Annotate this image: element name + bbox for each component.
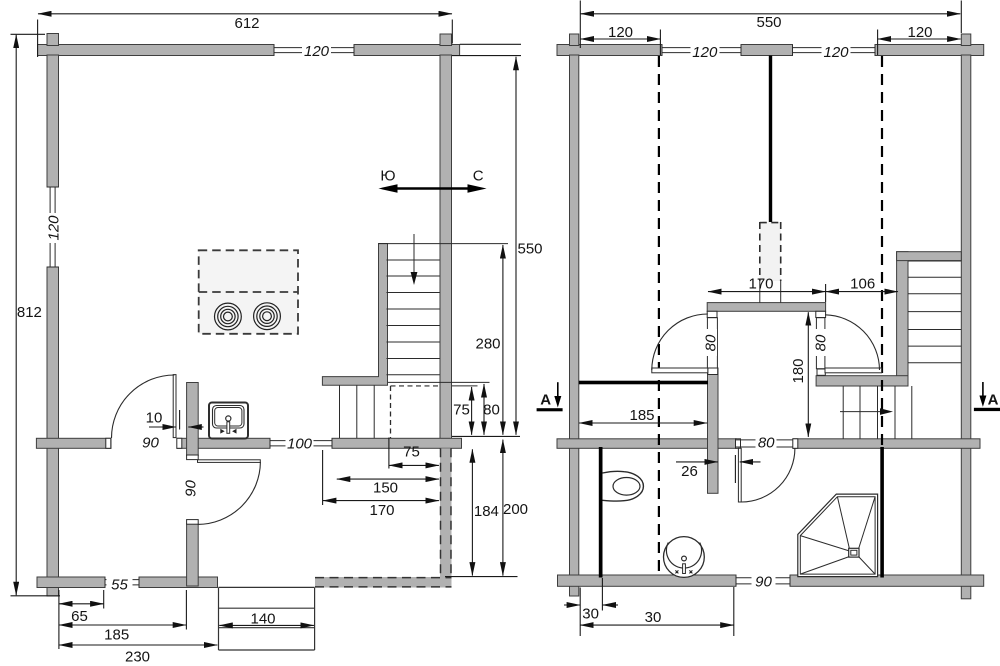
svg-text:10: 10 bbox=[146, 410, 163, 427]
svg-text:90: 90 bbox=[755, 574, 772, 591]
svg-text:184: 184 bbox=[474, 503, 499, 520]
svg-text:55: 55 bbox=[111, 577, 128, 594]
svg-text:65: 65 bbox=[71, 608, 88, 625]
svg-text:A: A bbox=[988, 392, 999, 409]
svg-text:120: 120 bbox=[46, 215, 63, 241]
svg-text:75: 75 bbox=[403, 444, 420, 461]
svg-text:170: 170 bbox=[748, 276, 773, 293]
svg-text:230: 230 bbox=[125, 649, 150, 666]
svg-text:30: 30 bbox=[582, 606, 599, 623]
svg-text:120: 120 bbox=[907, 24, 932, 41]
svg-text:200: 200 bbox=[503, 501, 528, 518]
svg-text:80: 80 bbox=[703, 334, 720, 351]
svg-text:A: A bbox=[540, 392, 551, 409]
svg-text:180: 180 bbox=[790, 358, 807, 383]
svg-text:550: 550 bbox=[756, 14, 781, 31]
svg-text:185: 185 bbox=[104, 627, 129, 644]
svg-text:26: 26 bbox=[681, 463, 698, 480]
svg-text:612: 612 bbox=[234, 15, 259, 32]
svg-text:75: 75 bbox=[453, 402, 470, 419]
svg-text:120: 120 bbox=[304, 43, 330, 60]
svg-text:185: 185 bbox=[629, 407, 654, 424]
svg-text:С: С bbox=[473, 168, 484, 185]
svg-text:170: 170 bbox=[369, 502, 394, 519]
svg-text:100: 100 bbox=[287, 436, 313, 453]
svg-text:80: 80 bbox=[483, 402, 500, 419]
svg-text:30: 30 bbox=[645, 609, 662, 626]
svg-text:Ю: Ю bbox=[380, 168, 395, 185]
svg-text:140: 140 bbox=[250, 611, 275, 628]
svg-text:120: 120 bbox=[823, 44, 849, 61]
svg-text:550: 550 bbox=[517, 241, 542, 258]
svg-text:80: 80 bbox=[758, 434, 775, 451]
svg-text:120: 120 bbox=[608, 24, 633, 41]
svg-text:120: 120 bbox=[692, 44, 718, 61]
svg-text:90: 90 bbox=[183, 480, 200, 497]
svg-text:90: 90 bbox=[142, 435, 159, 452]
svg-text:150: 150 bbox=[373, 480, 398, 497]
svg-text:280: 280 bbox=[475, 336, 500, 353]
svg-text:812: 812 bbox=[17, 304, 42, 321]
svg-text:106: 106 bbox=[850, 276, 875, 293]
svg-text:80: 80 bbox=[813, 334, 830, 351]
